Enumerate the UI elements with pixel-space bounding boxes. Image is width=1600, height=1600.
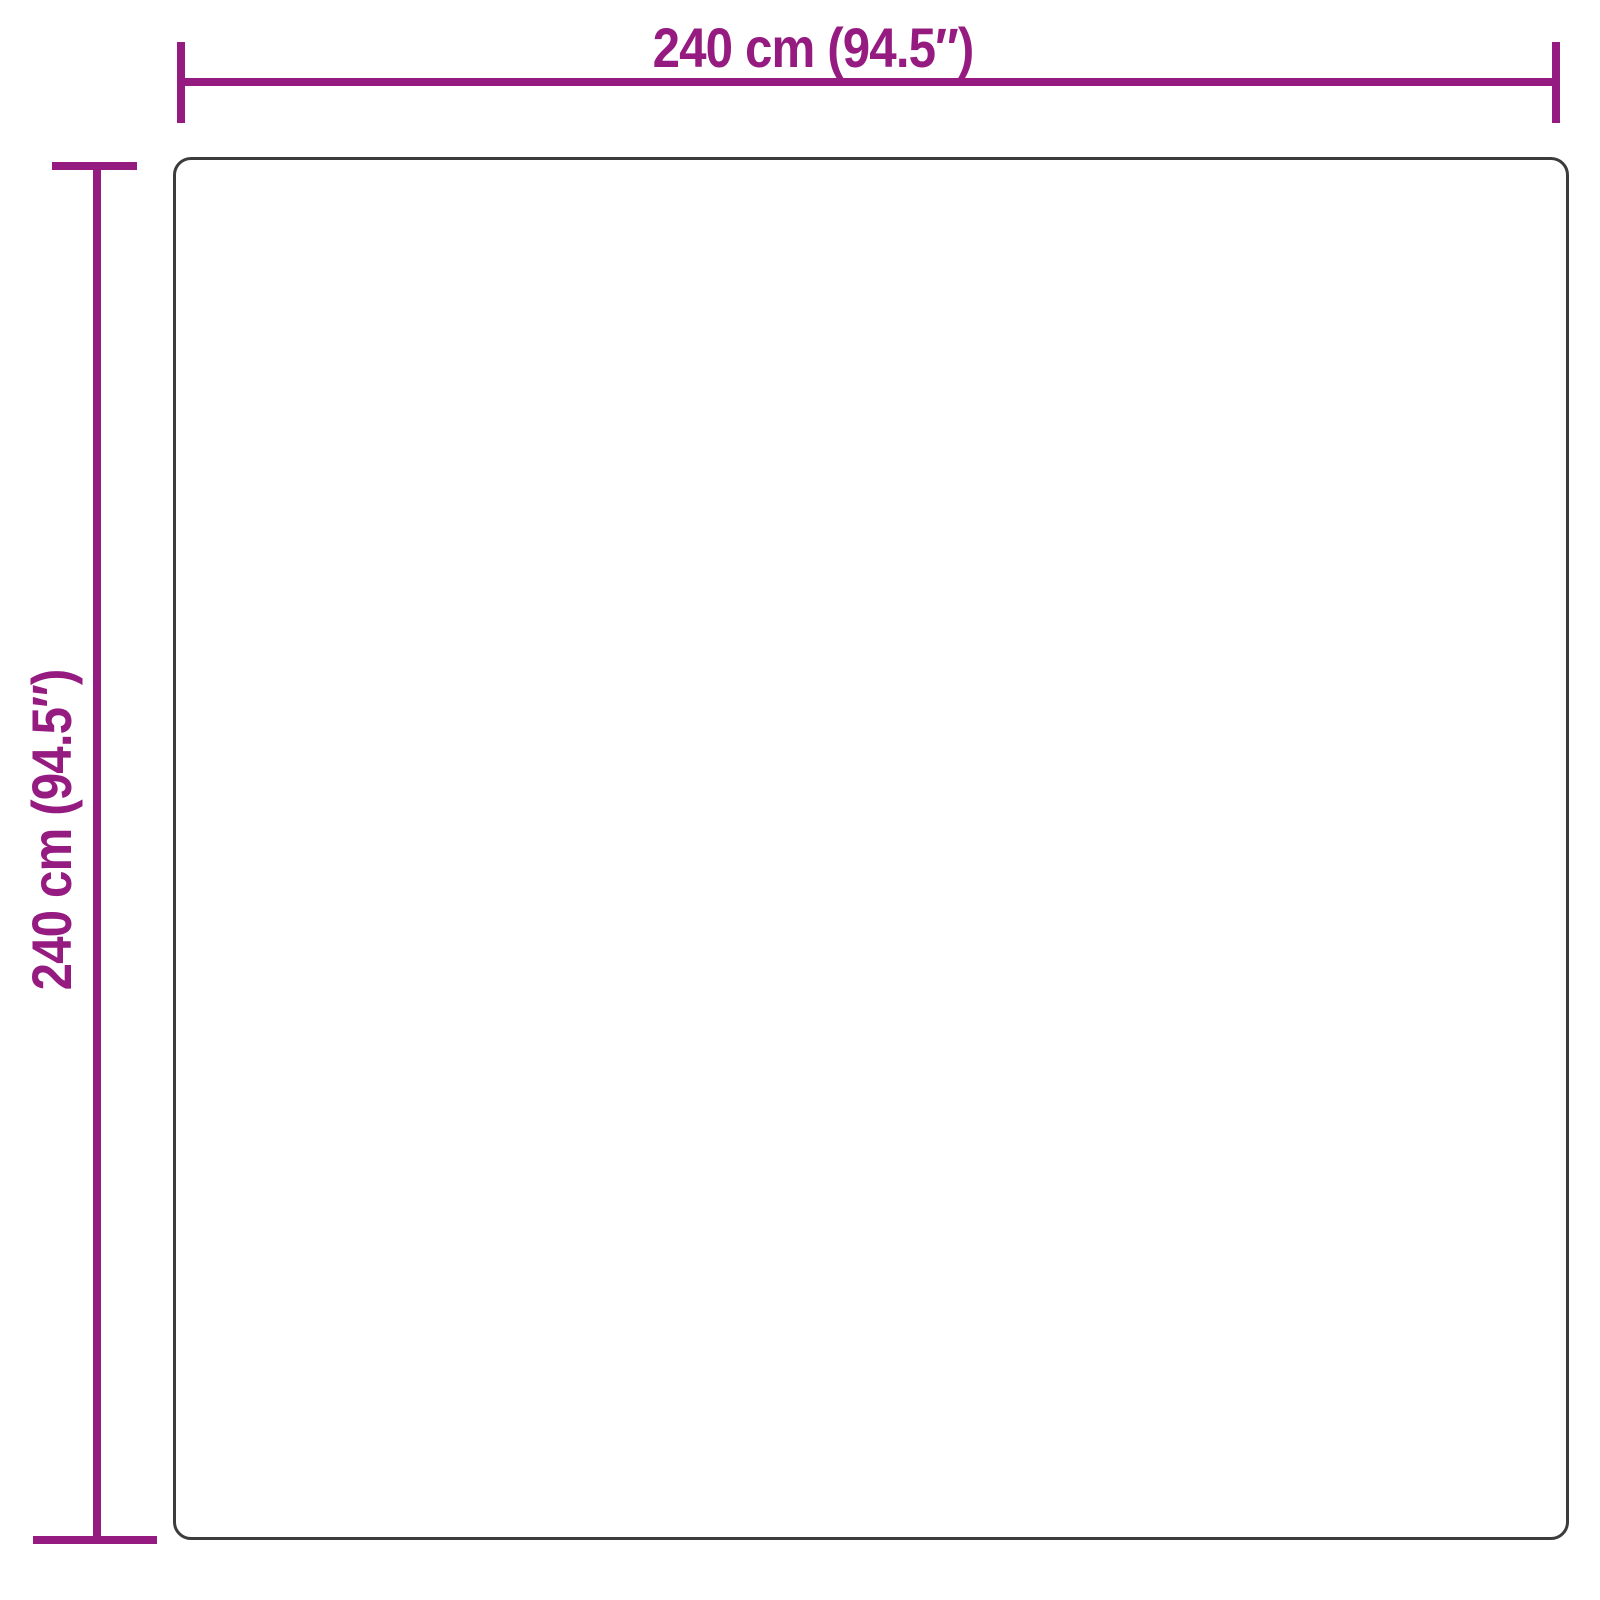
height-dimension-tick-bottom (33, 1536, 157, 1544)
height-dimension-label: 240 cm (94.5″) (24, 648, 80, 1013)
width-dimension-label-text: 240 cm (94.5″) (653, 20, 974, 76)
height-dimension-line (93, 166, 101, 1540)
height-dimension-tick-top (52, 162, 137, 170)
height-dimension-label-text: 240 cm (94.5″) (24, 670, 80, 991)
width-dimension-tick-right (1552, 42, 1560, 123)
width-dimension-line (181, 78, 1556, 86)
width-dimension-label: 240 cm (94.5″) (631, 20, 996, 76)
dimension-diagram: 240 cm (94.5″) 240 cm (94.5″) (0, 0, 1600, 1600)
width-dimension-tick-left (177, 42, 185, 123)
product-outline (173, 157, 1569, 1540)
